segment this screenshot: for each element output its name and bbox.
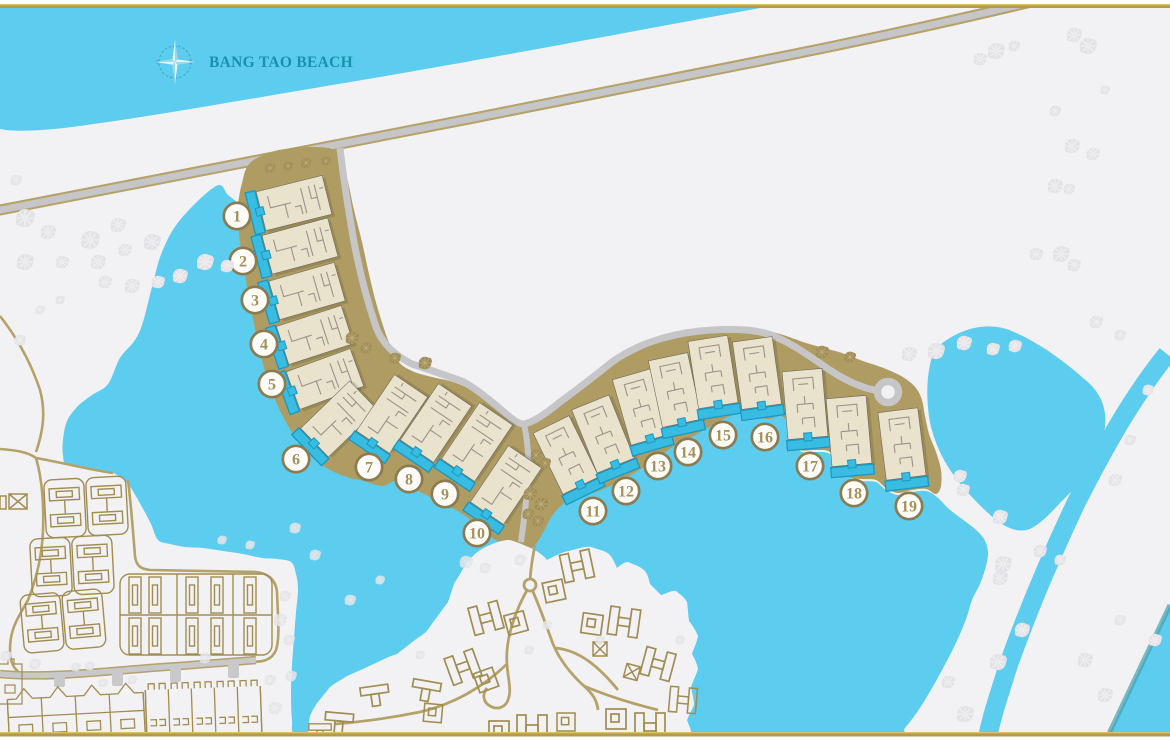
svg-text:8: 8 [405, 472, 413, 489]
svg-text:6: 6 [292, 452, 300, 469]
svg-text:15: 15 [715, 428, 731, 445]
svg-text:11: 11 [585, 504, 600, 521]
svg-text:4: 4 [260, 337, 268, 354]
svg-text:14: 14 [680, 445, 696, 462]
svg-text:19: 19 [901, 499, 917, 516]
svg-text:2: 2 [239, 254, 247, 271]
svg-text:9: 9 [441, 487, 449, 504]
svg-text:18: 18 [846, 486, 862, 503]
svg-text:5: 5 [268, 377, 276, 394]
svg-text:16: 16 [757, 430, 773, 447]
svg-text:7: 7 [365, 460, 373, 477]
svg-text:3: 3 [251, 293, 259, 310]
svg-text:13: 13 [650, 459, 666, 476]
svg-text:BANG TAO BEACH: BANG TAO BEACH [209, 54, 353, 71]
svg-text:1: 1 [233, 209, 241, 226]
svg-text:17: 17 [802, 459, 818, 476]
svg-text:10: 10 [469, 526, 485, 543]
svg-text:12: 12 [618, 484, 634, 501]
